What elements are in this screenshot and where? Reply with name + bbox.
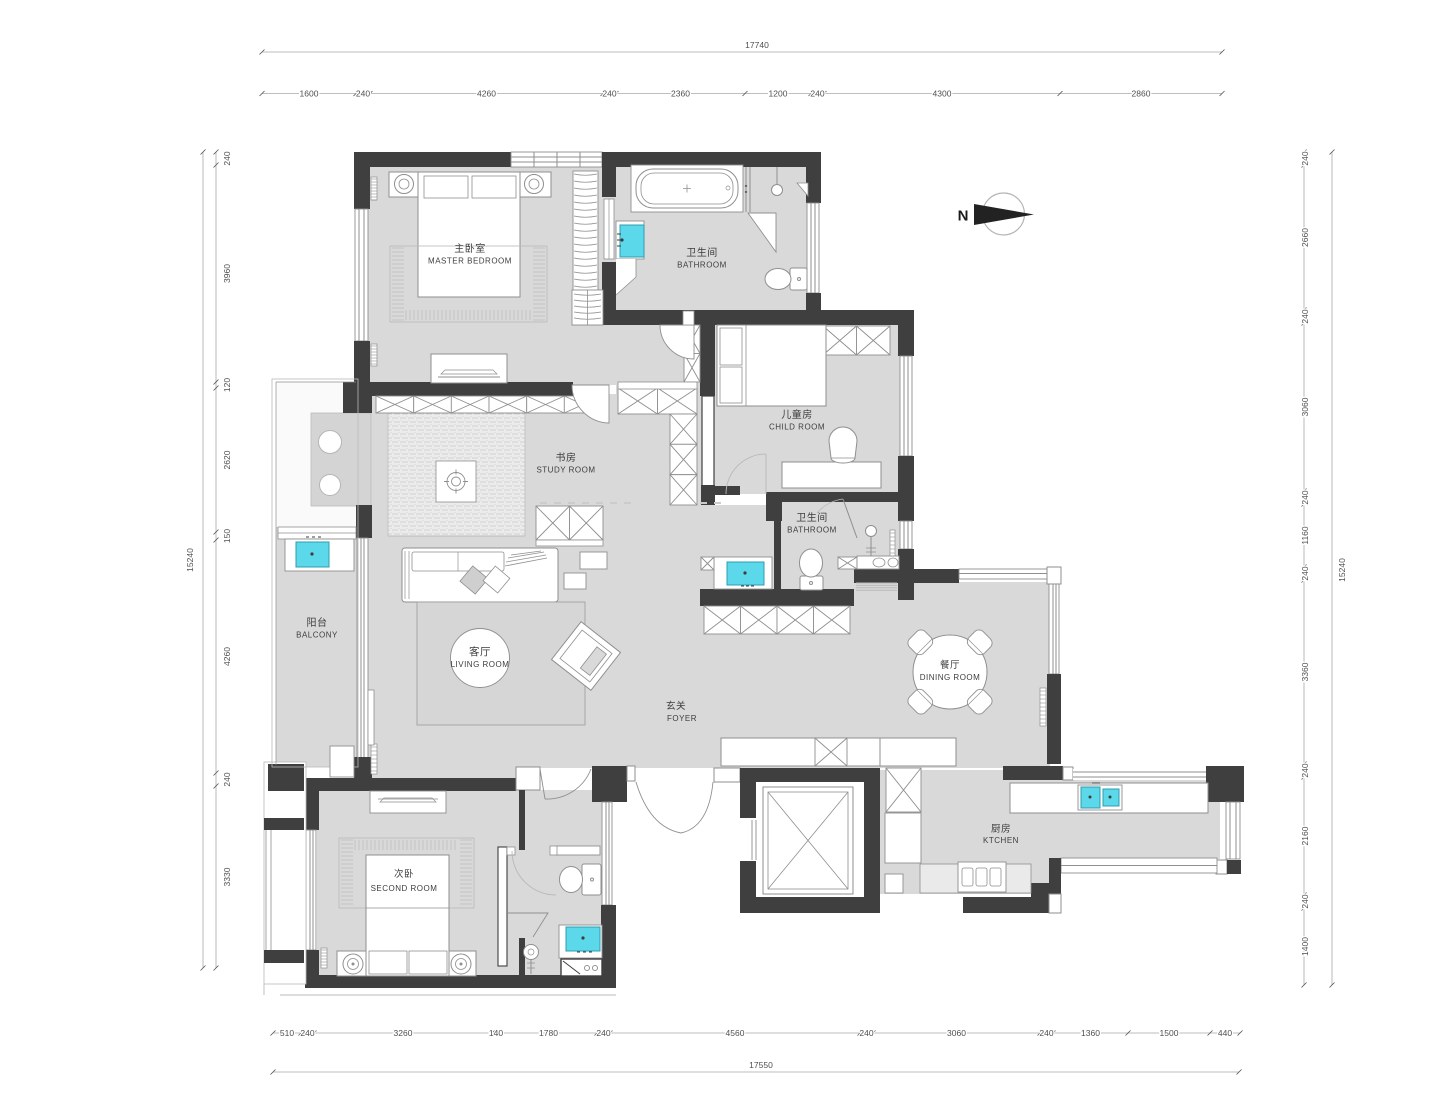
svg-text:卫生间: 卫生间 [796,511,828,524]
svg-text:N: N [958,208,969,225]
svg-text:120: 120 [222,378,232,392]
svg-text:3330: 3330 [222,867,232,886]
svg-text:240: 240 [1039,1028,1053,1038]
svg-text:240: 240 [1300,763,1310,777]
svg-text:1600: 1600 [300,89,319,99]
svg-text:17740: 17740 [745,40,769,50]
svg-text:240: 240 [1300,151,1310,165]
svg-text:MASTER BEDROOM: MASTER BEDROOM [428,257,512,266]
svg-text:240: 240 [1300,566,1310,580]
svg-text:240: 240 [859,1028,873,1038]
svg-text:3960: 3960 [222,264,232,283]
svg-text:240: 240 [596,1028,610,1038]
svg-text:240: 240 [222,772,232,786]
svg-text:240: 240 [810,89,824,99]
svg-text:BALCONY: BALCONY [296,631,338,640]
svg-text:15240: 15240 [1337,558,1347,582]
svg-text:玄关: 玄关 [666,700,686,712]
svg-text:儿童房: 儿童房 [781,408,813,421]
svg-text:SECOND ROOM: SECOND ROOM [371,884,438,893]
svg-text:STUDY ROOM: STUDY ROOM [536,466,595,475]
svg-text:2360: 2360 [671,89,690,99]
svg-text:主卧室: 主卧室 [454,242,486,255]
svg-text:15240: 15240 [185,548,195,572]
svg-text:1500: 1500 [1160,1028,1179,1038]
svg-text:4260: 4260 [222,647,232,666]
svg-text:240: 240 [222,151,232,165]
svg-text:1780: 1780 [539,1028,558,1038]
svg-text:240: 240 [1300,309,1310,323]
svg-text:CHILD ROOM: CHILD ROOM [769,423,825,432]
svg-text:1160: 1160 [1300,526,1310,545]
svg-text:4300: 4300 [933,89,952,99]
svg-text:餐厅: 餐厅 [940,659,960,671]
svg-text:2860: 2860 [1132,89,1151,99]
svg-text:240: 240 [1300,894,1310,908]
svg-text:DINING ROOM: DINING ROOM [920,673,981,682]
svg-text:厨房: 厨房 [991,823,1011,835]
svg-text:440: 440 [1218,1028,1232,1038]
svg-text:2160: 2160 [1300,826,1310,845]
svg-text:阳台: 阳台 [307,616,328,629]
svg-text:3260: 3260 [394,1028,413,1038]
svg-text:240: 240 [356,89,370,99]
svg-text:140: 140 [489,1028,503,1038]
svg-text:FOYER: FOYER [667,714,697,723]
svg-text:BATHROOM: BATHROOM [677,261,727,270]
svg-text:240: 240 [602,89,616,99]
svg-text:1360: 1360 [1081,1028,1100,1038]
svg-text:240: 240 [300,1028,314,1038]
svg-text:2620: 2620 [222,450,232,469]
svg-text:17550: 17550 [749,1060,773,1070]
svg-text:1400: 1400 [1300,937,1310,956]
svg-text:1200: 1200 [769,89,788,99]
svg-text:LIVING ROOM: LIVING ROOM [451,660,510,669]
svg-text:4560: 4560 [726,1028,745,1038]
svg-text:2660: 2660 [1300,228,1310,247]
svg-text:BATHROOM: BATHROOM [787,526,837,535]
svg-text:次卧: 次卧 [394,868,414,880]
svg-text:150: 150 [222,529,232,543]
svg-text:书房: 书房 [556,451,577,464]
svg-text:KTCHEN: KTCHEN [983,836,1019,845]
svg-text:510: 510 [280,1028,294,1038]
svg-text:客厅: 客厅 [469,645,491,658]
svg-text:3060: 3060 [947,1028,966,1038]
svg-text:240: 240 [1300,490,1310,504]
svg-text:卫生间: 卫生间 [686,246,718,259]
svg-text:4260: 4260 [477,89,496,99]
svg-text:3360: 3360 [1300,662,1310,681]
svg-text:3060: 3060 [1300,397,1310,416]
